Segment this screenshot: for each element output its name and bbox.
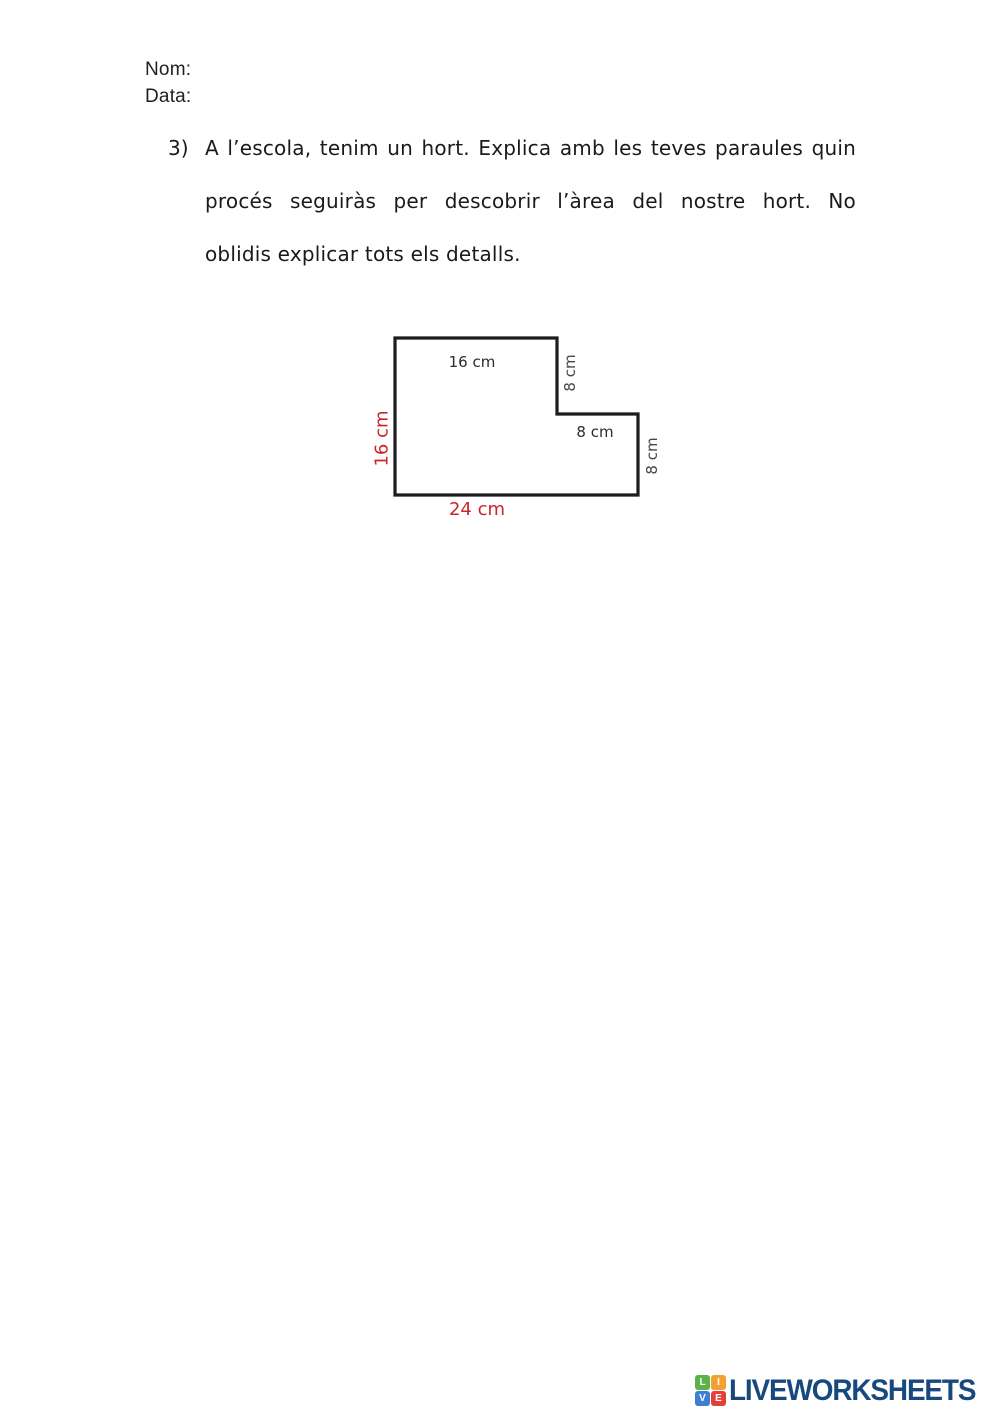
liveworksheets-wordmark: LIVEWORKSHEETS [729,1374,975,1408]
dimension-top-width: 16 cm [443,353,501,371]
liveworksheets-logo[interactable]: L I V E LIVEWORKSHEETS [695,1374,994,1408]
dimension-right-height: 8 cm [643,431,661,481]
l-shape-outline [395,338,638,495]
question-number: 3) [168,136,205,295]
logo-cell-i: I [711,1375,726,1390]
question-text: A l’escola, tenim un hort. Explica amb l… [205,136,856,295]
question-line-1: A l’escola, tenim un hort. Explica amb l… [205,136,856,189]
logo-cell-l: L [695,1375,710,1390]
dimension-left-height: 16 cm [372,408,393,470]
question-block: 3) A l’escola, tenim un hort. Explica am… [168,136,858,295]
logo-cell-e: E [711,1391,726,1406]
logo-cell-v: V [695,1391,710,1406]
name-field-label: Nom: [145,59,191,81]
dimension-bottom-width: 24 cm [447,499,507,520]
liveworksheets-grid-icon: L I V E [695,1375,727,1407]
question-line-3: oblidis explicar tots els detalls. [205,242,856,295]
question-line-2: procés seguiràs per descobrir l’àrea del… [205,189,856,242]
dimension-notch-height: 8 cm [561,348,579,398]
dimension-notch-width: 8 cm [568,423,622,441]
date-field-label: Data: [145,86,191,108]
garden-shape-figure [393,336,643,499]
